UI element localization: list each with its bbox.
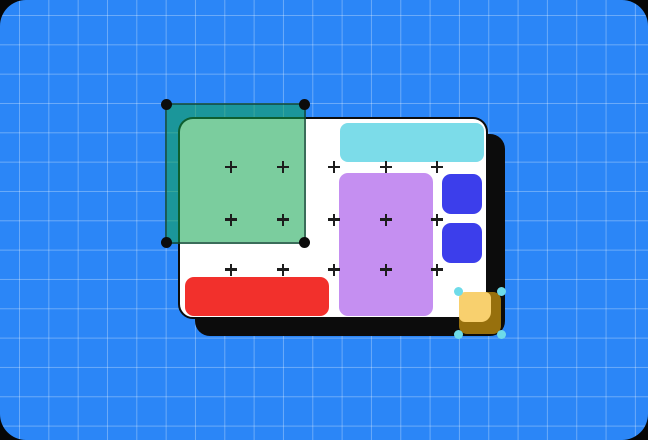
shape-blue-square-top[interactable] [442, 174, 482, 214]
selection-handle-top-right[interactable] [299, 99, 310, 110]
yellow-square[interactable] [459, 292, 491, 322]
stage [0, 0, 648, 440]
yellow-handle-bottom-right[interactable] [497, 330, 506, 339]
shape-cyan-bar[interactable] [340, 123, 484, 162]
yellow-handle-top-right[interactable] [497, 287, 506, 296]
yellow-handle-bottom-left[interactable] [454, 330, 463, 339]
selection-handle-top-left[interactable] [161, 99, 172, 110]
selection-handle-bottom-left[interactable] [161, 237, 172, 248]
yellow-handle-top-left[interactable] [454, 287, 463, 296]
selection-handle-bottom-right[interactable] [299, 237, 310, 248]
shape-purple-rectangle[interactable] [339, 173, 433, 316]
workspace-grid-background [0, 0, 648, 440]
shape-red-bar[interactable] [185, 277, 329, 316]
selected-yellow-square-group[interactable] [459, 292, 501, 334]
selected-green-rectangle[interactable] [165, 103, 306, 244]
shape-blue-square-bottom[interactable] [442, 223, 482, 263]
